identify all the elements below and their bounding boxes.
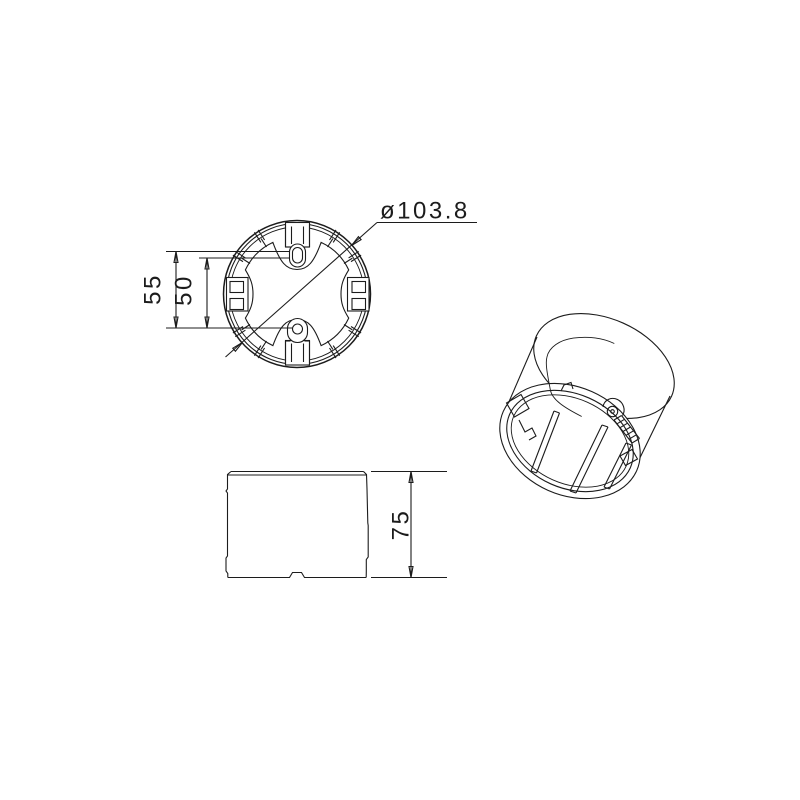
dim-55-label: 55 xyxy=(140,273,167,305)
mounting-tab-top xyxy=(286,223,310,268)
dimension-75: 75 xyxy=(371,472,447,578)
side-clip-right xyxy=(348,278,370,312)
front-view: 75 xyxy=(226,472,447,578)
front-view-outline xyxy=(226,472,368,578)
dim-50-label: 50 xyxy=(171,274,198,306)
diameter-dim-label: ø103.8 xyxy=(380,198,470,225)
technical-drawing-canvas: ø103.8 55 50 xyxy=(0,0,800,800)
dimension-55: 55 xyxy=(140,252,293,329)
isometric-view xyxy=(481,293,690,520)
mounting-tab-bottom xyxy=(286,319,310,366)
top-view: ø103.8 55 50 xyxy=(140,198,478,368)
side-clip-left xyxy=(227,278,249,312)
drawing-page: { "colors": { "background": "#ffffff", "… xyxy=(0,0,800,800)
dim-75-label: 75 xyxy=(388,509,415,541)
